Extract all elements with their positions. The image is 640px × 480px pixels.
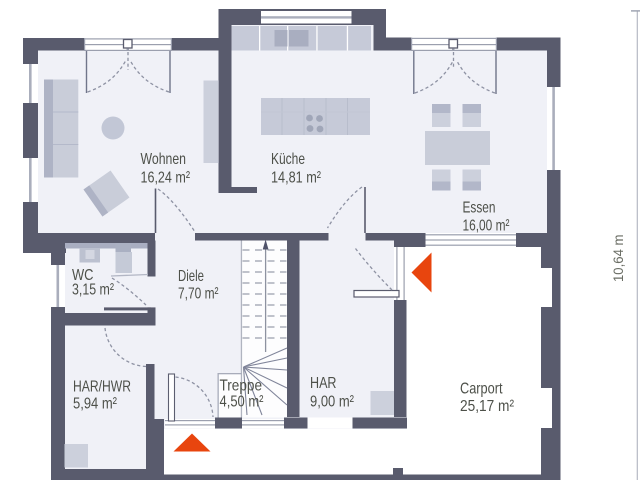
svg-text:Carport: Carport (460, 381, 503, 398)
svg-text:7,70 m²: 7,70 m² (178, 286, 219, 303)
svg-text:HAR/HWR: HAR/HWR (73, 379, 131, 396)
svg-text:Essen: Essen (463, 200, 496, 217)
svg-text:5,94 m²: 5,94 m² (73, 396, 118, 413)
svg-text:14,81 m²: 14,81 m² (271, 170, 322, 187)
svg-text:4,50 m²: 4,50 m² (220, 394, 265, 411)
svg-text:Küche: Küche (271, 151, 305, 168)
svg-text:25,17 m²: 25,17 m² (460, 398, 515, 415)
svg-text:16,24 m²: 16,24 m² (141, 170, 191, 187)
svg-text:Diele: Diele (178, 268, 204, 285)
svg-text:Wohnen: Wohnen (141, 151, 187, 168)
svg-text:10,64 m: 10,64 m (611, 235, 626, 283)
svg-text:3,15 m²: 3,15 m² (72, 282, 115, 299)
svg-text:16,00 m²: 16,00 m² (463, 218, 511, 235)
svg-text:9,00 m²: 9,00 m² (310, 394, 355, 411)
svg-text:Treppe: Treppe (220, 378, 263, 395)
svg-text:HAR: HAR (310, 375, 337, 392)
